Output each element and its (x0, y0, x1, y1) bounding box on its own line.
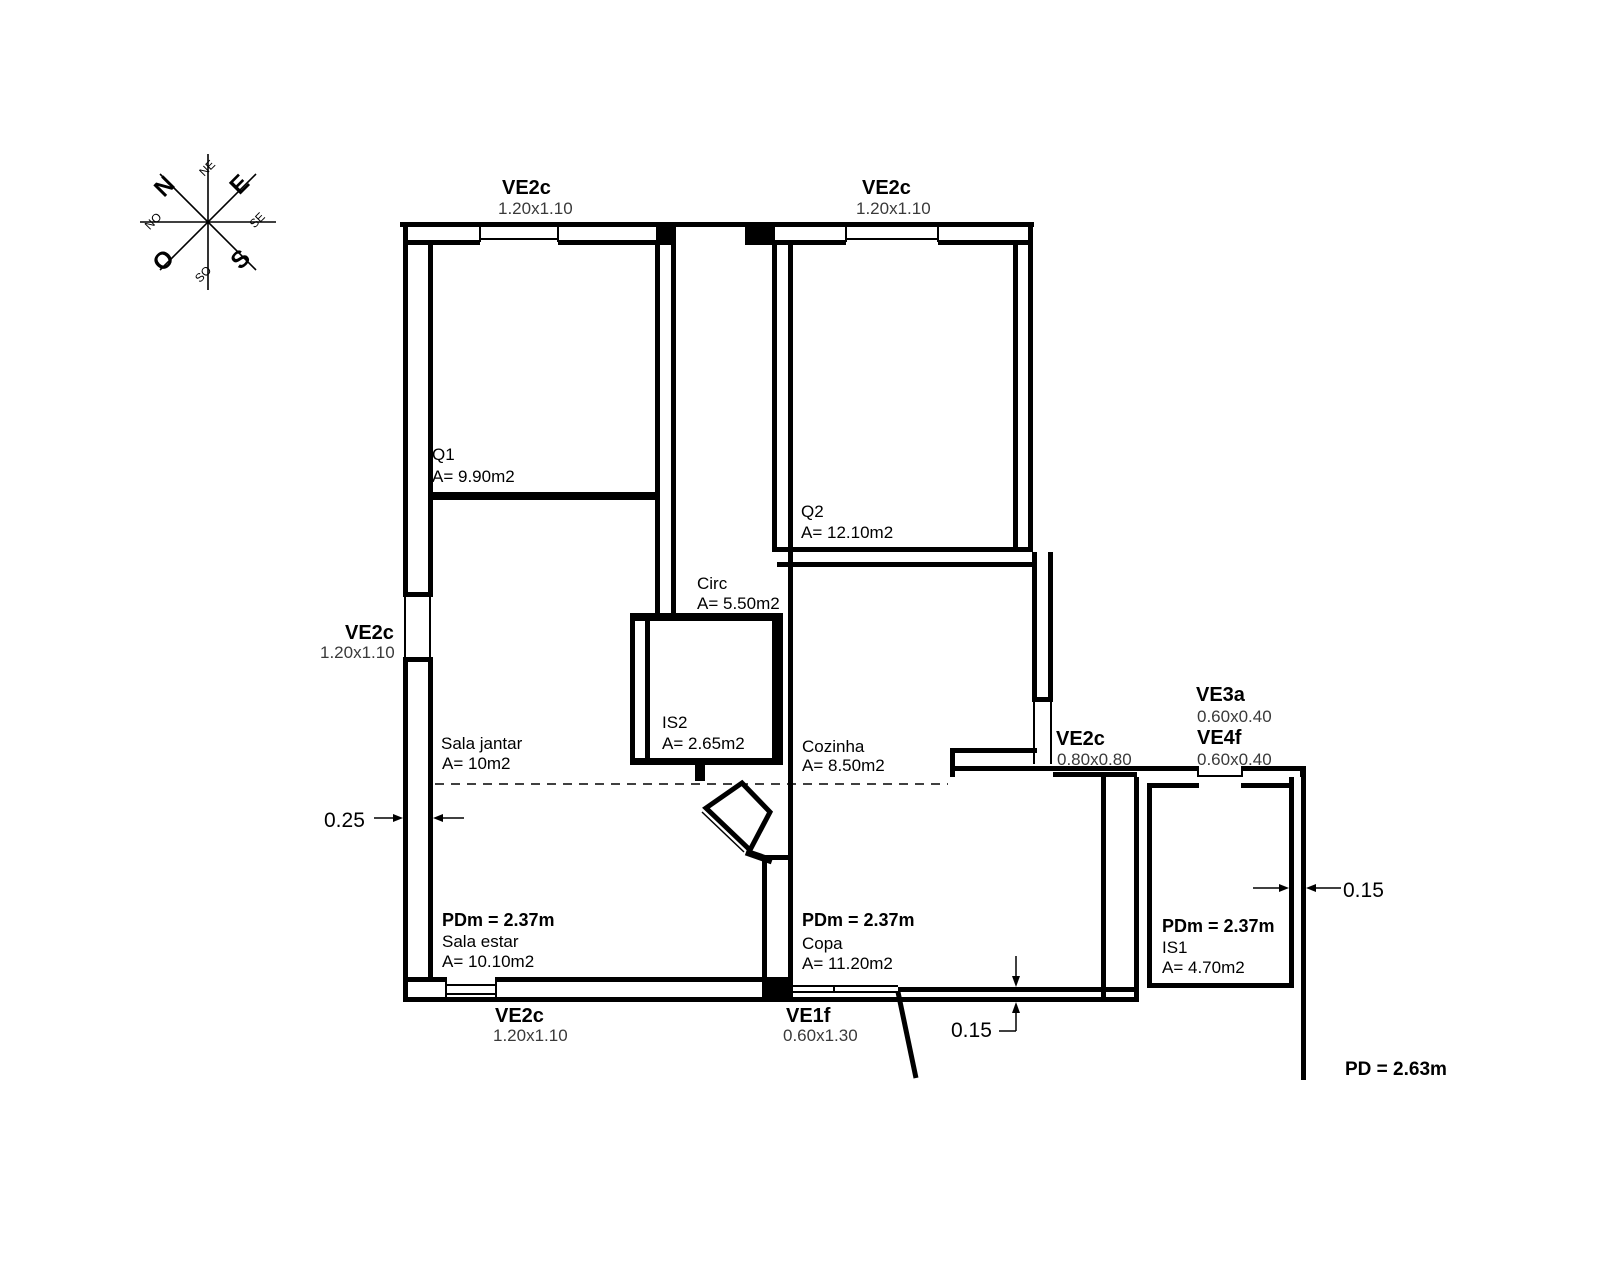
label-ve2c-left-code: VE2c (345, 622, 394, 644)
label-ve2c-right-size: 0.80x0.80 (1057, 750, 1132, 769)
interior-door (702, 783, 772, 861)
room-circ-name: Circ (697, 574, 728, 593)
label-ve1f-size: 0.60x1.30 (783, 1026, 858, 1045)
ceiling-height-note: PD = 2.63m (1345, 1059, 1447, 1080)
label-ve1f-code: VE1f (786, 1005, 831, 1027)
label-ve2c-bottom-size: 1.20x1.10 (493, 1026, 568, 1045)
dim-left-wall: 0.25 (324, 809, 365, 832)
label-ve2c-left-size: 1.20x1.10 (320, 643, 395, 662)
floor-plan-canvas: N E S O NE SE SO NO (0, 0, 1600, 1280)
label-ve2c-top-right-code: VE2c (862, 177, 911, 199)
label-ve2c-right-code: VE2c (1056, 728, 1105, 750)
room-sala-estar-pdm: PDm = 2.37m (442, 910, 555, 930)
room-q1-area: A= 9.90m2 (432, 467, 515, 486)
label-ve2c-top-left-code: VE2c (502, 177, 551, 199)
window-lines (404, 227, 1243, 1002)
room-q1-name: Q1 (432, 445, 455, 464)
room-sala-estar-name: Sala estar (442, 932, 519, 951)
room-cozinha-area: A= 8.50m2 (802, 756, 885, 775)
compass-se: SE (247, 210, 268, 231)
label-ve4f-code: VE4f (1197, 727, 1242, 749)
room-is2-name: IS2 (662, 713, 688, 732)
compass-ne: NE (196, 157, 218, 179)
entry-door-leaf (898, 992, 916, 1078)
room-sala-jantar-area: A= 10m2 (442, 754, 511, 773)
room-q2-name: Q2 (801, 502, 824, 521)
dim-bottom-wall: 0.15 (951, 1019, 992, 1042)
room-q2-area: A= 12.10m2 (801, 523, 893, 542)
room-is1-area: A= 4.70m2 (1162, 958, 1245, 977)
room-sala-estar-area: A= 10.10m2 (442, 952, 534, 971)
label-ve4f-size: 0.60x0.40 (1197, 750, 1272, 769)
label-ve2c-bottom-code: VE2c (495, 1005, 544, 1027)
room-circ-area: A= 5.50m2 (697, 594, 780, 613)
room-is2-area: A= 2.65m2 (662, 734, 745, 753)
compass-s: S (225, 244, 255, 274)
room-cozinha-name: Cozinha (802, 737, 865, 756)
room-is1-name: IS1 (1162, 938, 1188, 957)
label-ve2c-top-left-size: 1.20x1.10 (498, 199, 573, 218)
room-copa-area: A= 11.20m2 (802, 954, 893, 973)
compass-o: O (148, 245, 180, 277)
compass-so: SO (192, 263, 214, 285)
room-sala-jantar-name: Sala jantar (441, 734, 523, 753)
label-ve2c-top-right-size: 1.20x1.10 (856, 199, 931, 218)
compass-no: NO (142, 210, 165, 233)
floor-plan-drawing: N E S O NE SE SO NO (0, 0, 1600, 1280)
compass-n: N (149, 171, 180, 202)
compass-e: E (224, 169, 254, 199)
room-copa-name: Copa (802, 934, 843, 953)
label-ve3a-code: VE3a (1196, 684, 1246, 706)
dim-right-wall: 0.15 (1343, 879, 1384, 902)
room-is1-pdm: PDm = 2.37m (1162, 916, 1275, 936)
room-copa-pdm: PDm = 2.37m (802, 910, 915, 930)
label-ve3a-size: 0.60x0.40 (1197, 707, 1272, 726)
